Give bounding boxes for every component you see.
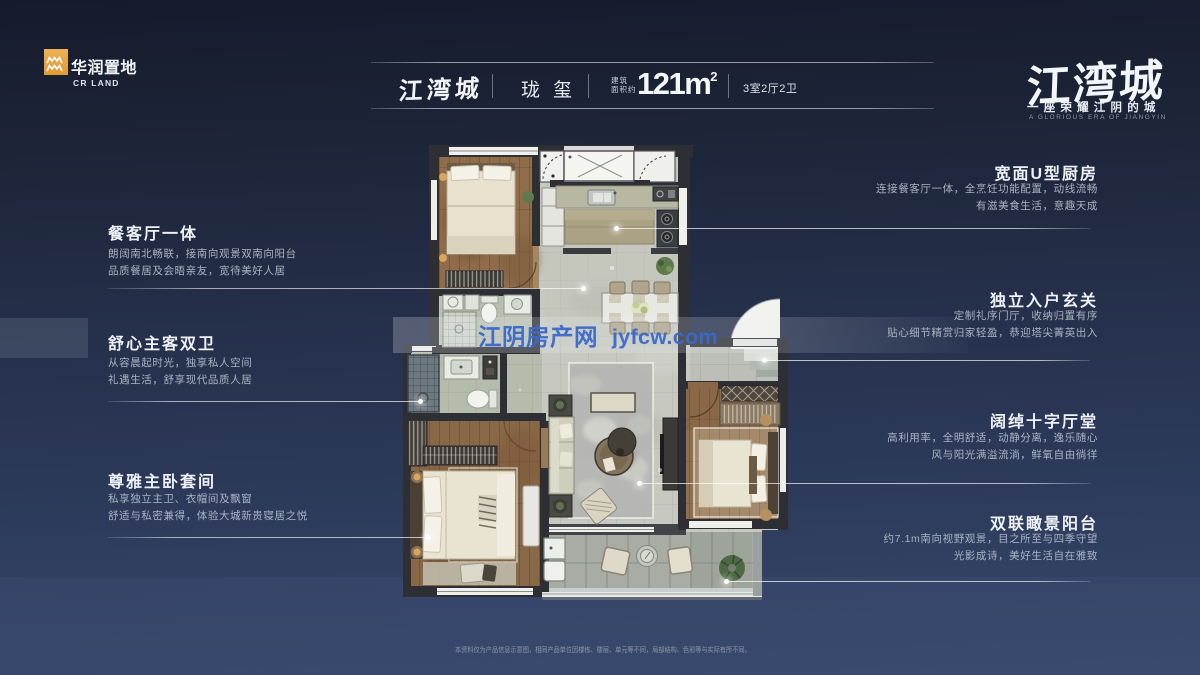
- svg-text:江阴房产网: 江阴房产网: [478, 323, 598, 350]
- svg-text:jyfcw.com: jyfcw.com: [611, 325, 718, 349]
